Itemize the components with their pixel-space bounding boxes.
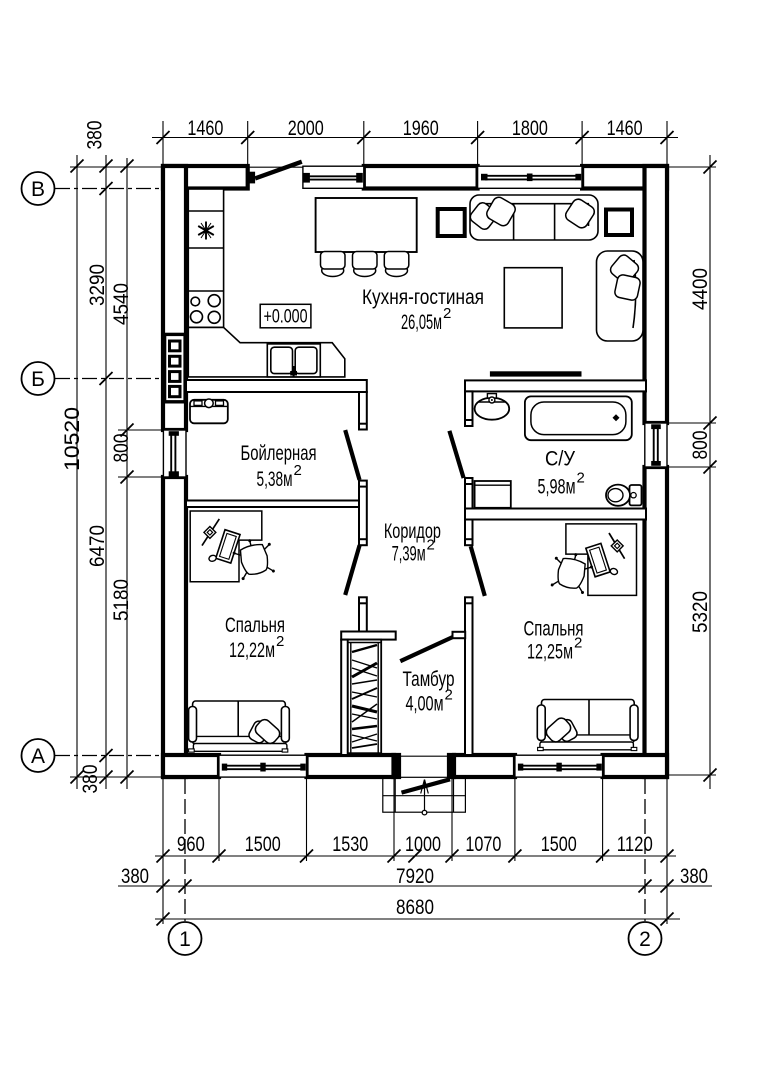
svg-text:5,98м: 5,98м: [538, 475, 576, 499]
svg-text:1120: 1120: [617, 833, 653, 856]
svg-text:960: 960: [177, 833, 205, 856]
svg-text:Б: Б: [31, 368, 45, 391]
svg-text:6470: 6470: [86, 525, 109, 567]
svg-text:2: 2: [443, 305, 451, 322]
svg-text:2: 2: [574, 635, 582, 652]
svg-text:С/У: С/У: [545, 447, 575, 471]
svg-text:380: 380: [680, 865, 708, 888]
svg-text:3290: 3290: [86, 264, 109, 306]
svg-text:12,25м: 12,25м: [527, 640, 573, 664]
svg-text:1070: 1070: [465, 833, 501, 856]
svg-text:1: 1: [179, 928, 191, 951]
svg-text:В: В: [31, 178, 45, 201]
svg-text:2: 2: [639, 928, 651, 951]
svg-text:2000: 2000: [288, 117, 324, 140]
svg-text:1000: 1000: [405, 833, 441, 856]
svg-text:8680: 8680: [396, 896, 434, 919]
svg-text:26,05м: 26,05м: [401, 310, 442, 334]
svg-text:7920: 7920: [396, 865, 434, 888]
svg-text:4400: 4400: [689, 268, 712, 310]
svg-text:2: 2: [294, 462, 302, 479]
svg-text:4,00м: 4,00м: [406, 692, 444, 716]
svg-text:1530: 1530: [332, 833, 368, 856]
svg-text:1960: 1960: [403, 117, 439, 140]
svg-text:2: 2: [276, 633, 284, 650]
svg-text:1460: 1460: [187, 117, 223, 140]
svg-text:1500: 1500: [245, 833, 281, 856]
svg-text:4540: 4540: [110, 283, 133, 325]
svg-text:1460: 1460: [607, 117, 643, 140]
svg-text:2: 2: [577, 470, 585, 487]
svg-text:Кухня-гостиная: Кухня-гостиная: [362, 285, 484, 309]
svg-text:+0.000: +0.000: [264, 306, 308, 328]
svg-text:800: 800: [110, 434, 133, 463]
svg-text:2: 2: [445, 687, 453, 704]
svg-text:800: 800: [689, 431, 712, 460]
svg-text:12,22м: 12,22м: [229, 638, 275, 662]
svg-text:1500: 1500: [541, 833, 577, 856]
svg-text:1800: 1800: [512, 117, 548, 140]
svg-text:2: 2: [427, 537, 435, 554]
svg-text:5180: 5180: [110, 579, 133, 621]
svg-text:А: А: [31, 745, 45, 768]
svg-text:10520: 10520: [61, 407, 84, 471]
svg-text:7,39м: 7,39м: [392, 542, 426, 566]
svg-text:380: 380: [79, 765, 102, 794]
svg-text:Бойлерная: Бойлерная: [241, 441, 317, 465]
svg-text:380: 380: [84, 121, 107, 150]
svg-text:5320: 5320: [689, 591, 712, 633]
svg-text:380: 380: [121, 865, 149, 888]
svg-text:5,38м: 5,38м: [257, 467, 293, 491]
